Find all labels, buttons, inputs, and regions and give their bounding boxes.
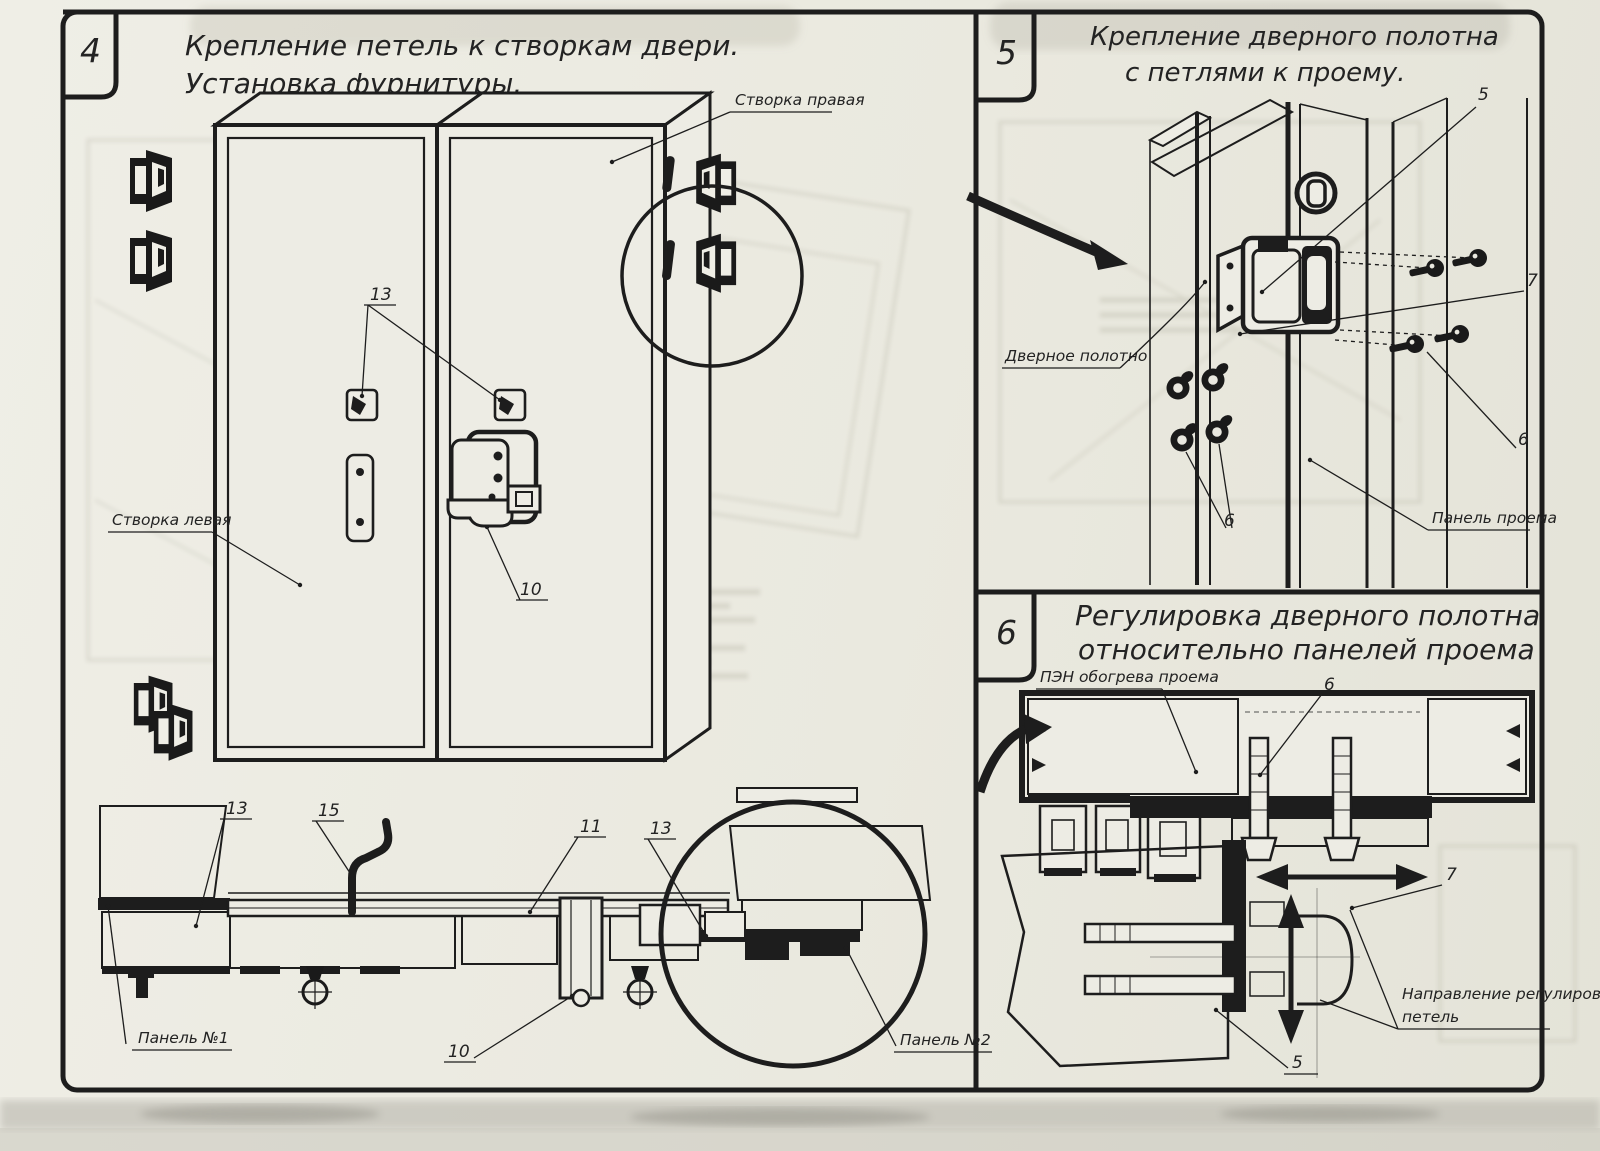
- hinge-icon: [154, 704, 193, 761]
- step-5-number: 5: [996, 33, 1017, 72]
- svg-text:Панель №2: Панель №2: [900, 1031, 991, 1049]
- step-box-6: 6: [976, 592, 1034, 680]
- scan-edge-artifact: [0, 1100, 1600, 1151]
- opening-beam-section: [1022, 693, 1532, 800]
- svg-text:ПЭН обогрева проема: ПЭН обогрева проема: [1040, 668, 1219, 686]
- svg-text:Панель №1: Панель №1: [138, 1029, 229, 1047]
- brick-wall-right: [730, 826, 930, 900]
- panel6-title-line1: Регулировка дверного полотна: [1075, 599, 1540, 632]
- label-panel2: Панель №2: [844, 946, 992, 1052]
- svg-text:13: 13: [226, 799, 248, 819]
- latch-mechanism: [448, 432, 540, 526]
- svg-text:5: 5: [1292, 1053, 1303, 1073]
- technical-drawing: 4 5 6 Крепление петель к створкам двери.…: [0, 0, 1600, 1151]
- horizontal-adjust-arrow: [1256, 864, 1428, 890]
- panel5-title-line1: Крепление дверного полотна: [1090, 22, 1499, 52]
- svg-text:13: 13: [650, 819, 672, 839]
- hinge-detail: [1218, 238, 1338, 332]
- svg-text:6: 6: [1224, 511, 1235, 531]
- callout-6-right-p5: 6: [1427, 352, 1529, 450]
- hinge-icon: [130, 230, 172, 292]
- screw-icon: [1433, 323, 1471, 348]
- left-door-leaf: [215, 125, 437, 760]
- flow-arrow-to-step5: [968, 196, 1128, 270]
- hinge-loop: [1297, 916, 1352, 1004]
- svg-text:петель: петель: [1402, 1008, 1459, 1026]
- screw-icon: [1451, 247, 1489, 272]
- screw-icon: [1408, 257, 1446, 282]
- svg-text:Направление регулировки: Направление регулировки: [1402, 985, 1600, 1003]
- handle-hook: [352, 822, 388, 912]
- callout-10-bottom: 10: [444, 994, 574, 1062]
- panel6-title-line2: относительно панелей проема: [1078, 633, 1535, 666]
- panel4-title-line1: Крепление петель к створкам двери.: [185, 29, 739, 62]
- svg-text:Створка левая: Створка левая: [112, 511, 232, 529]
- panel5-title-line2: с петлями к проему.: [1125, 58, 1405, 88]
- step-4-number: 4: [80, 31, 101, 70]
- door-leaves-drawing: [215, 93, 710, 760]
- panel6-adjustment: Регулировка дверного полотна относительн…: [980, 599, 1600, 1078]
- screws: [1335, 247, 1489, 358]
- caster-wheel: [623, 966, 657, 1009]
- washer-icon: [1202, 361, 1231, 392]
- svg-text:Панель проема: Панель проема: [1432, 509, 1557, 527]
- scanned-drawing-sheet: 4 5 6 Крепление петель к створкам двери.…: [0, 0, 1600, 1151]
- svg-text:5: 5: [1478, 85, 1489, 105]
- panel4-hinges-to-leaves: Крепление петель к створкам двери. Устан…: [98, 29, 992, 1066]
- svg-text:15: 15: [318, 801, 340, 821]
- step-6-number: 6: [996, 613, 1017, 652]
- svg-text:6: 6: [1324, 675, 1335, 695]
- svg-text:7: 7: [1527, 271, 1538, 291]
- svg-text:11: 11: [580, 817, 602, 837]
- svg-text:7: 7: [1446, 865, 1457, 885]
- step-box-4: 4: [63, 12, 116, 97]
- callout-5-p6: 5: [1214, 1008, 1318, 1074]
- center-post: [560, 898, 602, 998]
- label-direction: Направление регулировки петель: [1320, 910, 1600, 1029]
- svg-text:10: 10: [520, 580, 542, 600]
- svg-text:13: 13: [370, 285, 392, 305]
- svg-text:Створка правая: Створка правая: [735, 91, 865, 109]
- svg-text:10: 10: [448, 1042, 470, 1062]
- floor-cross-section: [98, 788, 930, 1066]
- washers: [1167, 361, 1235, 452]
- hinge-icon: [130, 150, 172, 212]
- label-panel1: Панель №1: [106, 904, 232, 1050]
- svg-text:6: 6: [1518, 430, 1529, 450]
- washer-icon: [1167, 369, 1196, 400]
- label-opening-panel: Панель проема: [1308, 458, 1557, 530]
- callout-15: 15: [312, 801, 354, 878]
